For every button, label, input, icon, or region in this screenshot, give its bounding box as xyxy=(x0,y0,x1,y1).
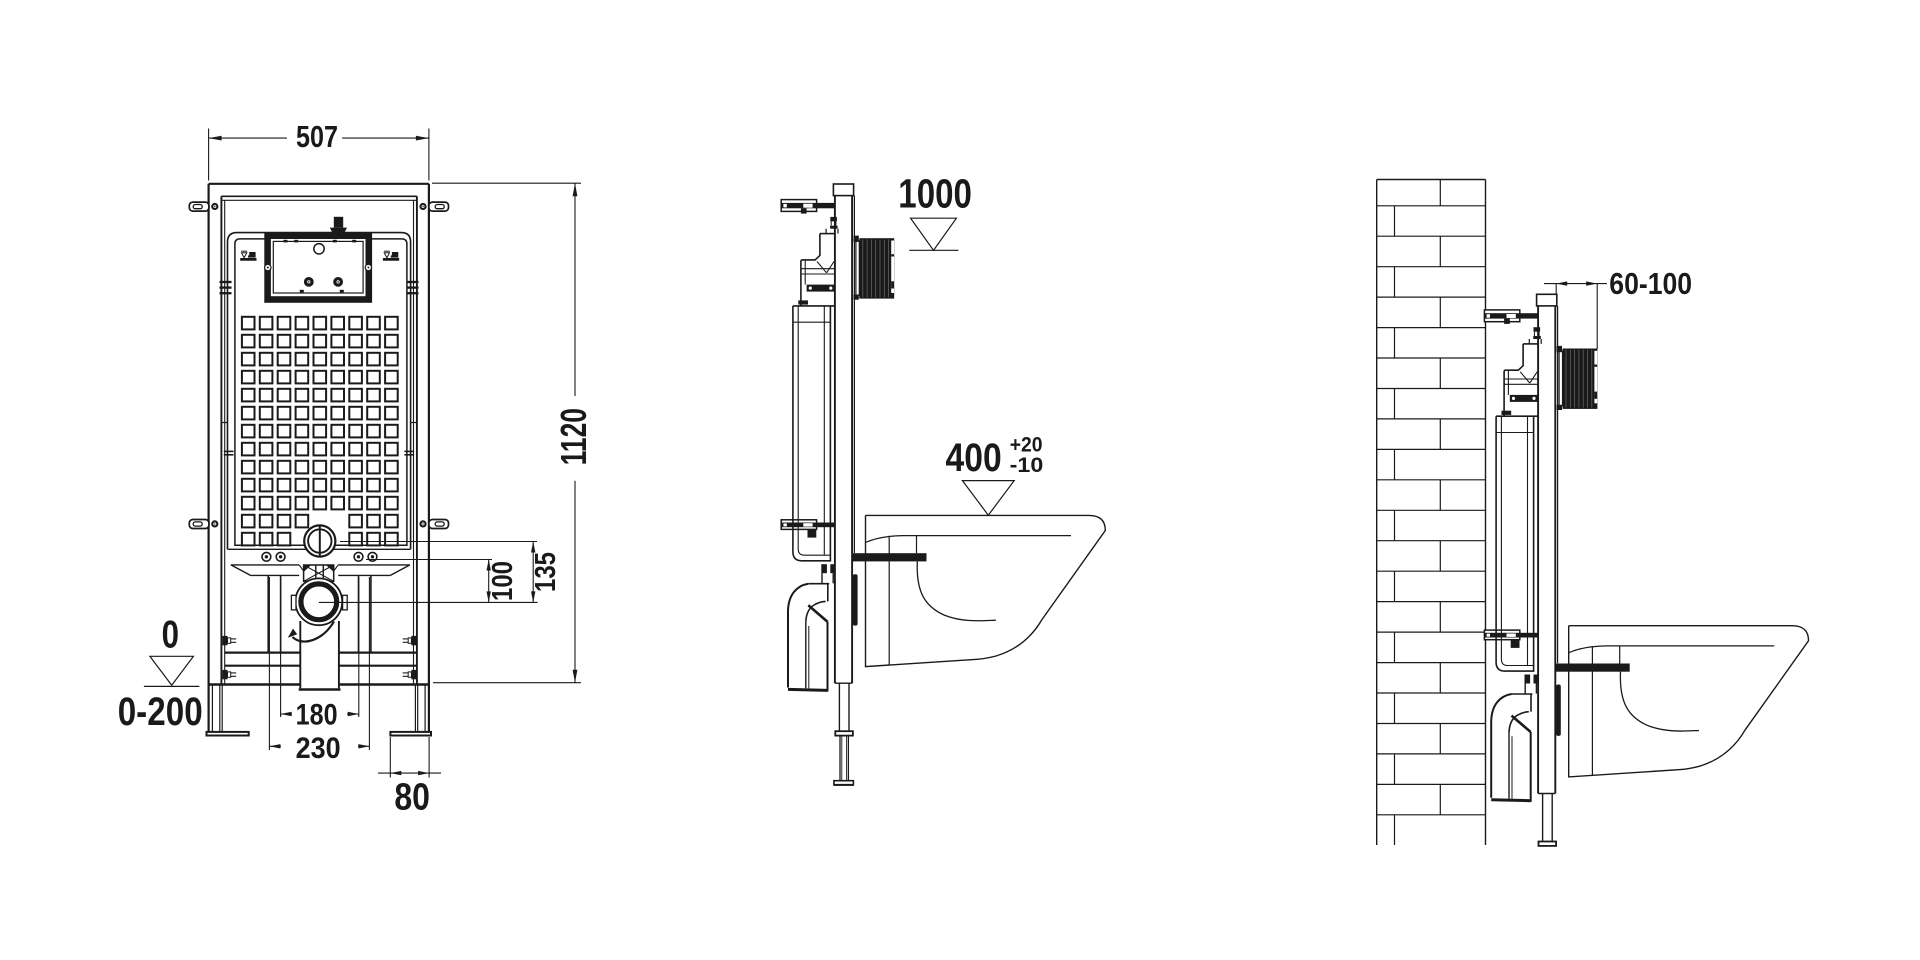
svg-text:230: 230 xyxy=(296,732,341,765)
svg-text:0-200: 0-200 xyxy=(118,690,203,734)
svg-text:400: 400 xyxy=(946,436,1002,480)
svg-text:60-100: 60-100 xyxy=(1609,266,1692,301)
svg-text:1120: 1120 xyxy=(553,408,594,465)
svg-text:0: 0 xyxy=(162,613,179,656)
svg-text:507: 507 xyxy=(296,119,338,154)
svg-text:80: 80 xyxy=(394,776,430,818)
svg-text:180: 180 xyxy=(296,698,338,731)
svg-text:1000: 1000 xyxy=(898,171,972,217)
svg-text:135: 135 xyxy=(530,552,562,592)
svg-text:-10: -10 xyxy=(1010,453,1044,477)
svg-text:100: 100 xyxy=(487,561,519,601)
